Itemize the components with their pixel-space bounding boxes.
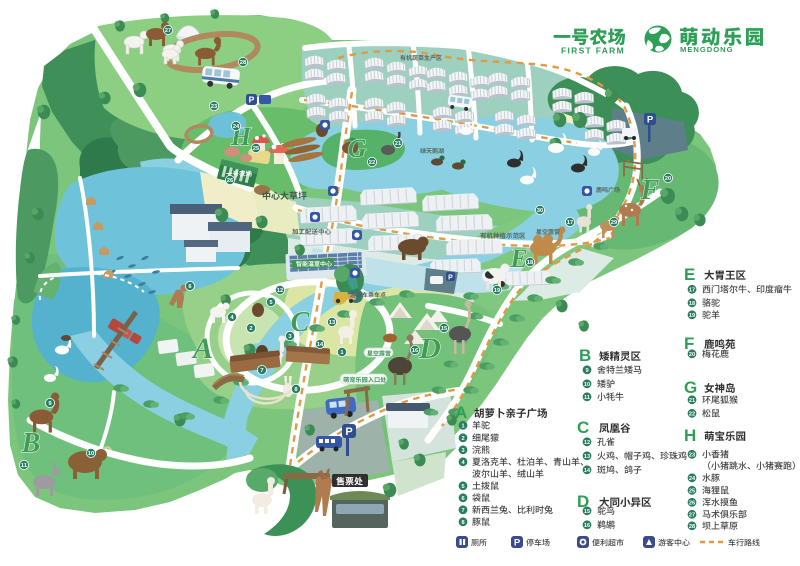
svg-text:7: 7 xyxy=(461,508,464,514)
svg-text:7: 7 xyxy=(260,368,263,374)
svg-text:G: G xyxy=(684,378,697,397)
svg-text:1: 1 xyxy=(461,424,464,430)
svg-text:30: 30 xyxy=(537,208,543,214)
svg-text:26: 26 xyxy=(227,178,234,184)
svg-text:G: G xyxy=(348,134,367,163)
svg-text:FIRST FARM: FIRST FARM xyxy=(561,46,625,56)
svg-text:21: 21 xyxy=(395,141,402,147)
svg-text:F: F xyxy=(640,175,660,206)
svg-text:E: E xyxy=(684,265,695,284)
svg-text:28: 28 xyxy=(689,524,695,530)
svg-text:14: 14 xyxy=(317,342,324,348)
svg-text:19: 19 xyxy=(494,288,501,294)
svg-text:16: 16 xyxy=(412,348,419,354)
svg-text:27: 27 xyxy=(165,28,171,34)
svg-text:14: 14 xyxy=(584,468,591,474)
svg-text:15: 15 xyxy=(441,326,448,332)
svg-text:P: P xyxy=(345,426,352,438)
svg-text:12: 12 xyxy=(277,288,283,294)
svg-text:12: 12 xyxy=(584,440,590,446)
svg-text:6: 6 xyxy=(461,496,464,502)
svg-text:13: 13 xyxy=(584,454,590,460)
svg-text:B: B xyxy=(21,428,41,459)
svg-text:11: 11 xyxy=(21,463,28,469)
svg-text:18: 18 xyxy=(527,260,534,266)
svg-text:P: P xyxy=(514,538,521,549)
svg-text:11: 11 xyxy=(584,395,590,401)
svg-text:3: 3 xyxy=(461,448,464,454)
svg-text:25: 25 xyxy=(689,489,695,495)
svg-text:16: 16 xyxy=(584,523,590,529)
svg-text:A: A xyxy=(191,332,213,365)
svg-text:26: 26 xyxy=(689,501,695,507)
svg-text:B: B xyxy=(579,346,591,365)
svg-text:19: 19 xyxy=(689,313,695,319)
svg-text:C: C xyxy=(577,418,589,437)
svg-text:P: P xyxy=(647,115,654,126)
svg-text:MENGDONG: MENGDONG xyxy=(680,45,734,54)
svg-text:23: 23 xyxy=(211,104,218,110)
svg-text:22: 22 xyxy=(689,412,695,418)
svg-text:20: 20 xyxy=(689,352,695,358)
svg-text:10: 10 xyxy=(88,451,94,457)
svg-text:13: 13 xyxy=(329,320,336,326)
svg-text:H: H xyxy=(684,426,696,445)
svg-text:10: 10 xyxy=(584,382,590,388)
svg-text:E: E xyxy=(509,244,527,273)
svg-text:28: 28 xyxy=(240,60,247,66)
svg-text:24: 24 xyxy=(689,476,696,482)
svg-text:17: 17 xyxy=(567,220,573,226)
svg-text:15: 15 xyxy=(584,509,590,515)
svg-text:D: D xyxy=(418,332,441,365)
svg-text:23: 23 xyxy=(689,453,695,459)
svg-text:27: 27 xyxy=(689,513,695,519)
svg-text:A: A xyxy=(455,403,467,422)
svg-text:2: 2 xyxy=(461,436,464,442)
svg-text:9: 9 xyxy=(585,368,588,374)
svg-text:2: 2 xyxy=(249,326,252,332)
svg-text:P: P xyxy=(448,275,453,282)
svg-text:8: 8 xyxy=(461,520,464,526)
svg-text:18: 18 xyxy=(689,301,695,307)
svg-text:21: 21 xyxy=(689,398,695,404)
svg-text:20: 20 xyxy=(665,176,671,182)
svg-text:22: 22 xyxy=(369,160,375,166)
svg-text:25: 25 xyxy=(253,146,260,152)
svg-text:24: 24 xyxy=(233,124,240,130)
svg-text:P: P xyxy=(249,95,255,105)
svg-text:17: 17 xyxy=(689,288,695,294)
svg-text:5: 5 xyxy=(461,484,464,490)
svg-text:29: 29 xyxy=(611,220,618,226)
